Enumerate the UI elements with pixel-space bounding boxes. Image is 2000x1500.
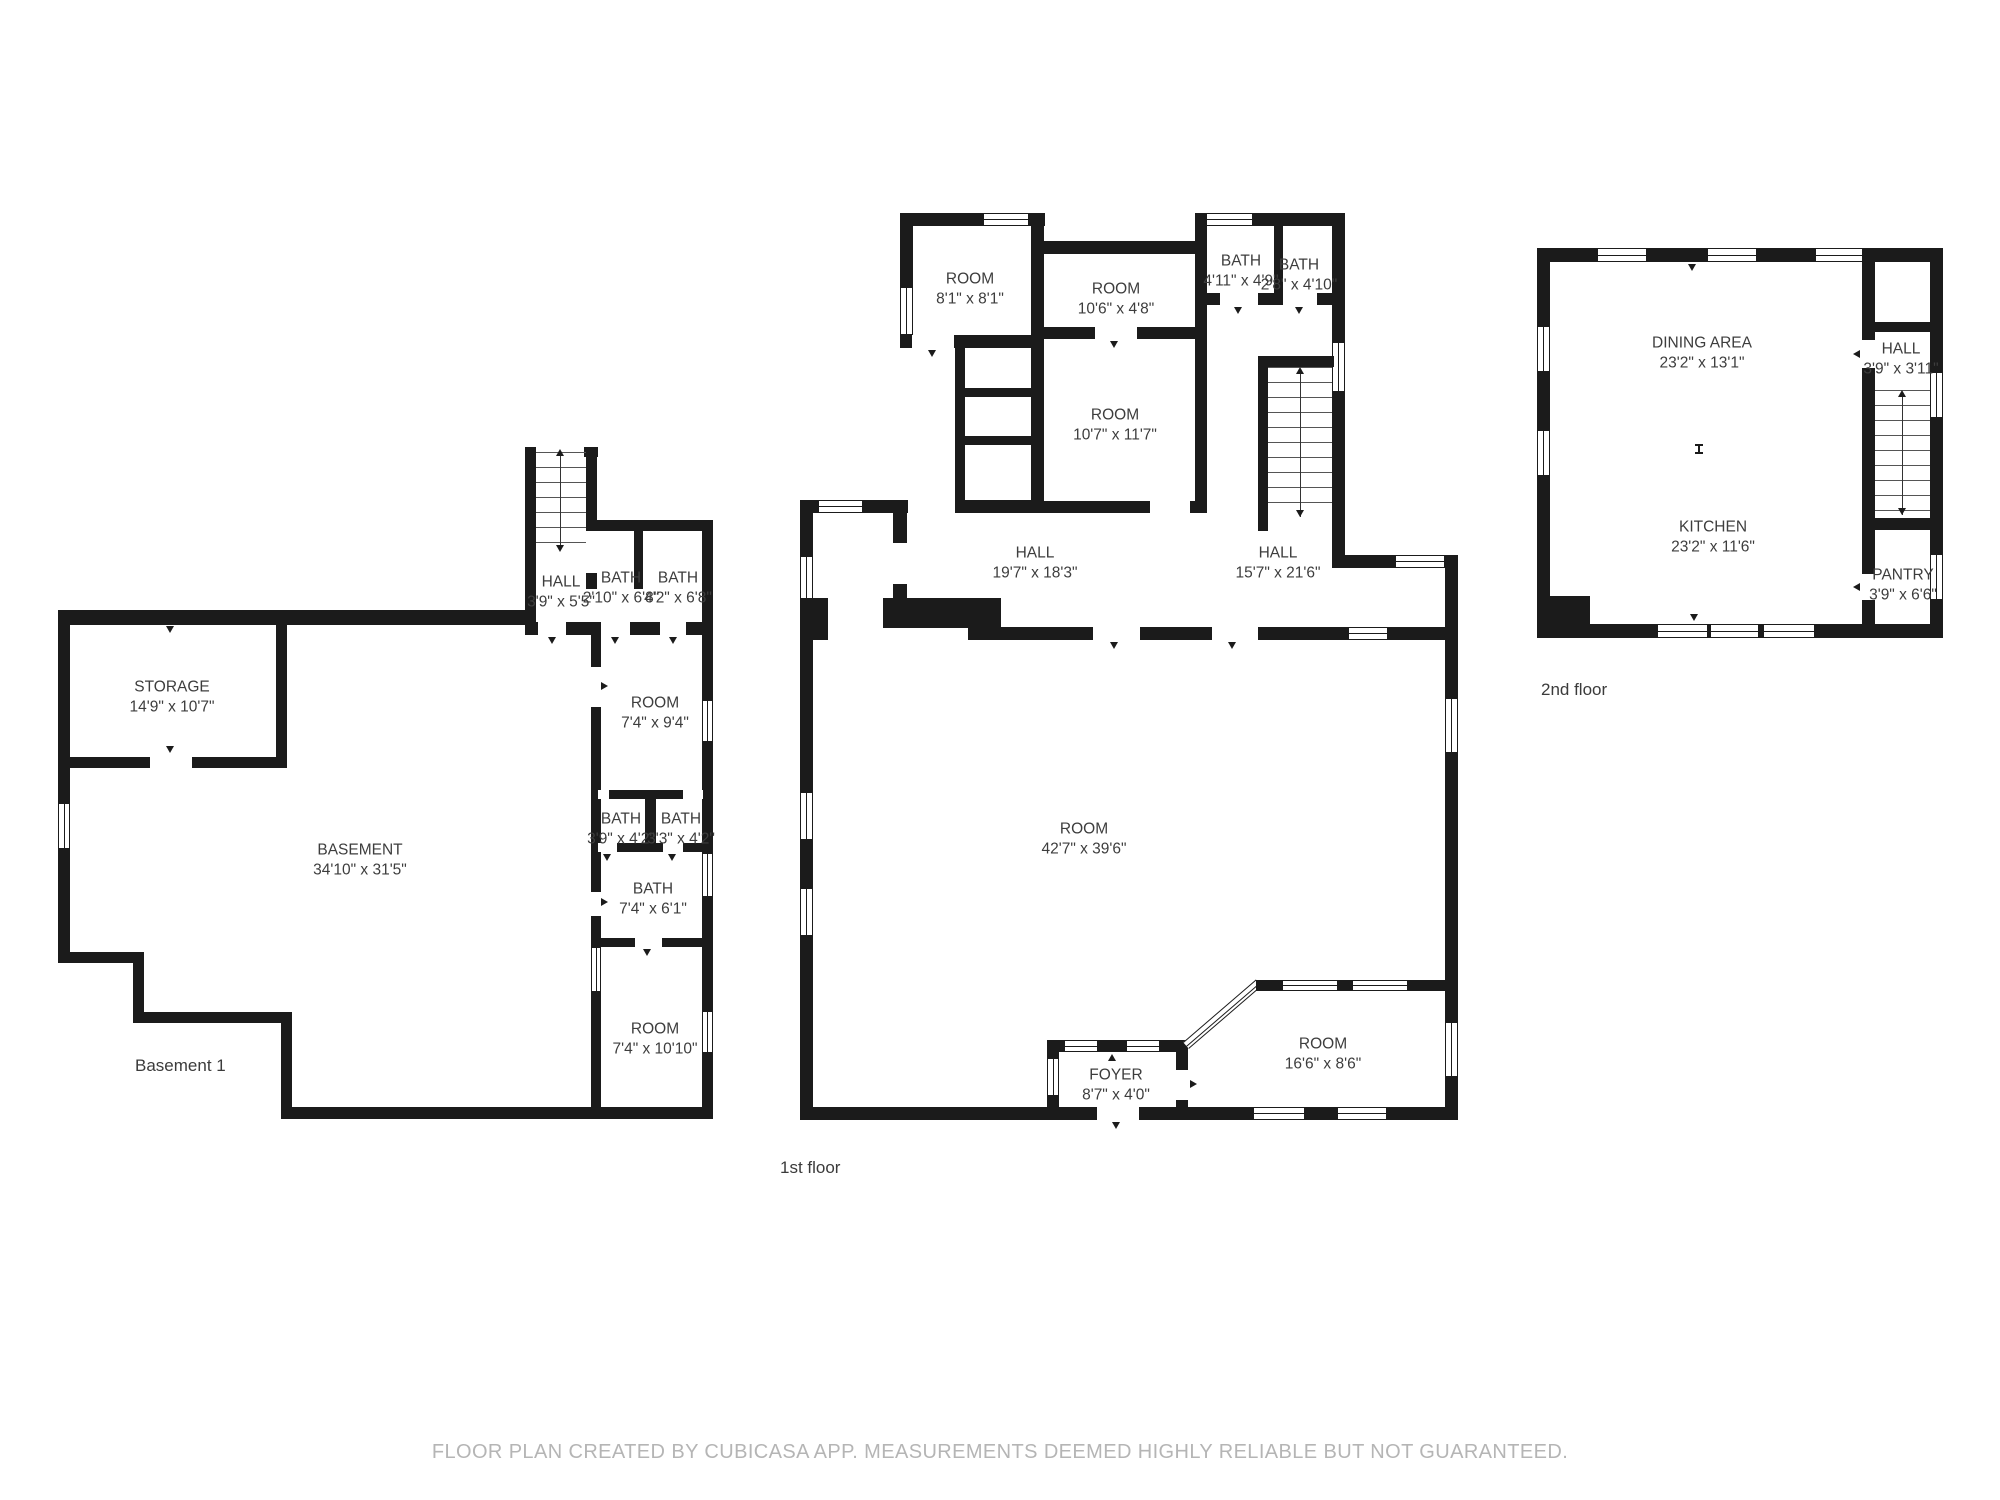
window — [1707, 248, 1757, 262]
room-name: HALL — [1863, 340, 1938, 360]
second-floor-plan: DINING AREA 23'2" x 13'1" KITCHEN 23'2" … — [0, 0, 2000, 1500]
window — [1597, 248, 1647, 262]
window — [1710, 624, 1759, 638]
reference-marker — [1695, 452, 1703, 454]
chimney-mass — [1537, 596, 1590, 638]
door-arrow — [1853, 583, 1860, 591]
wall — [1537, 248, 1550, 603]
stair-arrow-icon — [1898, 390, 1906, 397]
window — [1537, 326, 1550, 372]
room-dims: 23'2" x 13'1" — [1652, 354, 1752, 374]
room-dims: 23'2" x 11'6" — [1671, 538, 1755, 558]
window — [1537, 430, 1550, 476]
room-label-kitchen: KITCHEN 23'2" x 11'6" — [1671, 518, 1755, 559]
room-dims: 3'9" x 3'11" — [1863, 360, 1938, 380]
room-label-dining: DINING AREA 23'2" x 13'1" — [1652, 334, 1752, 375]
door-arrow — [1853, 350, 1860, 358]
door-arrow — [1690, 614, 1698, 621]
room-dims: 3'9" x 6'6" — [1869, 586, 1937, 606]
room-name: KITCHEN — [1671, 518, 1755, 538]
window — [1763, 624, 1815, 638]
window — [1815, 248, 1863, 262]
floor-label-second: 2nd floor — [1541, 680, 1607, 700]
floorplan-canvas: STORAGE 14'9" x 10'7" HALL 3'9" x 5'5" B… — [0, 0, 2000, 1500]
door-arrow — [1688, 264, 1696, 271]
room-name: DINING AREA — [1652, 334, 1752, 354]
window — [1657, 624, 1708, 638]
room-label-hall: HALL 3'9" x 3'11" — [1863, 340, 1938, 381]
wall — [1875, 518, 1930, 530]
stair-arrow-icon — [1898, 508, 1906, 515]
room-label-pantry: PANTRY 3'9" x 6'6" — [1869, 566, 1937, 607]
wall — [1875, 322, 1930, 332]
disclaimer-text: FLOOR PLAN CREATED BY CUBICASA APP. MEAS… — [0, 1441, 2000, 1464]
room-name: PANTRY — [1869, 566, 1937, 586]
stair-direction-line — [1902, 393, 1903, 515]
